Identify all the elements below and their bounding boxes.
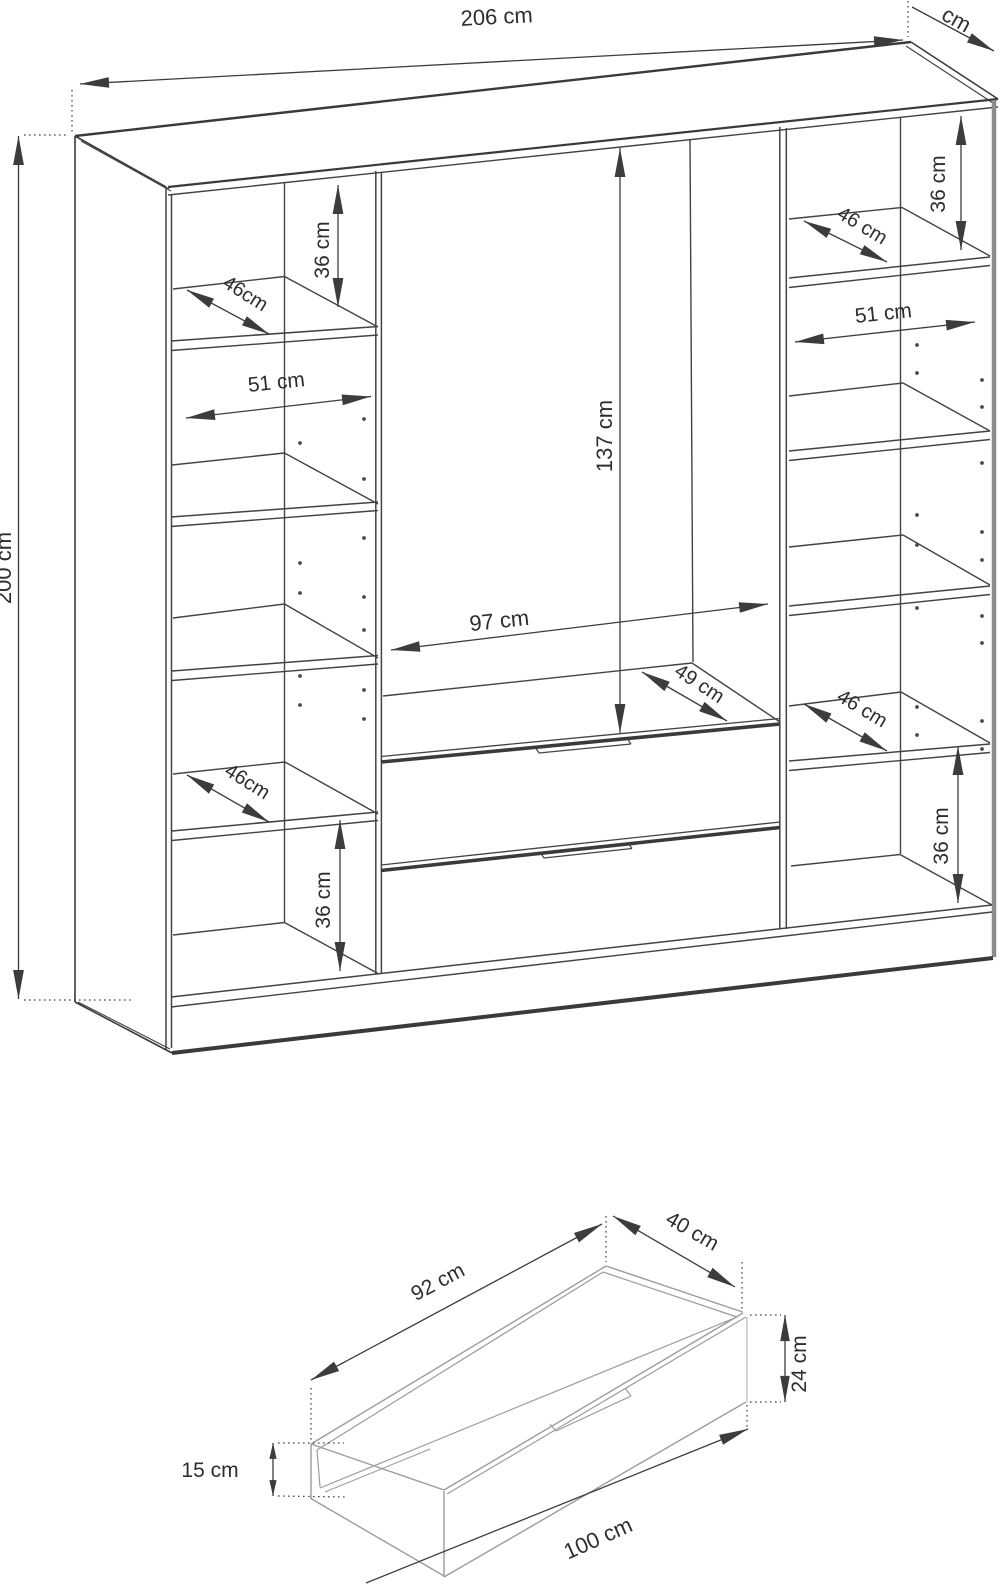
svg-text:206 cm: 206 cm — [460, 2, 533, 31]
svg-text:137 cm: 137 cm — [592, 400, 617, 472]
svg-text:24 cm: 24 cm — [788, 1335, 811, 1392]
svg-text:36 cm: 36 cm — [927, 155, 950, 212]
svg-text:36 cm: 36 cm — [312, 871, 335, 928]
svg-text:36 cm: 36 cm — [930, 807, 953, 864]
svg-text:15 cm: 15 cm — [181, 1459, 238, 1482]
svg-text:36 cm: 36 cm — [311, 221, 334, 278]
svg-text:200 cm: 200 cm — [0, 532, 16, 604]
